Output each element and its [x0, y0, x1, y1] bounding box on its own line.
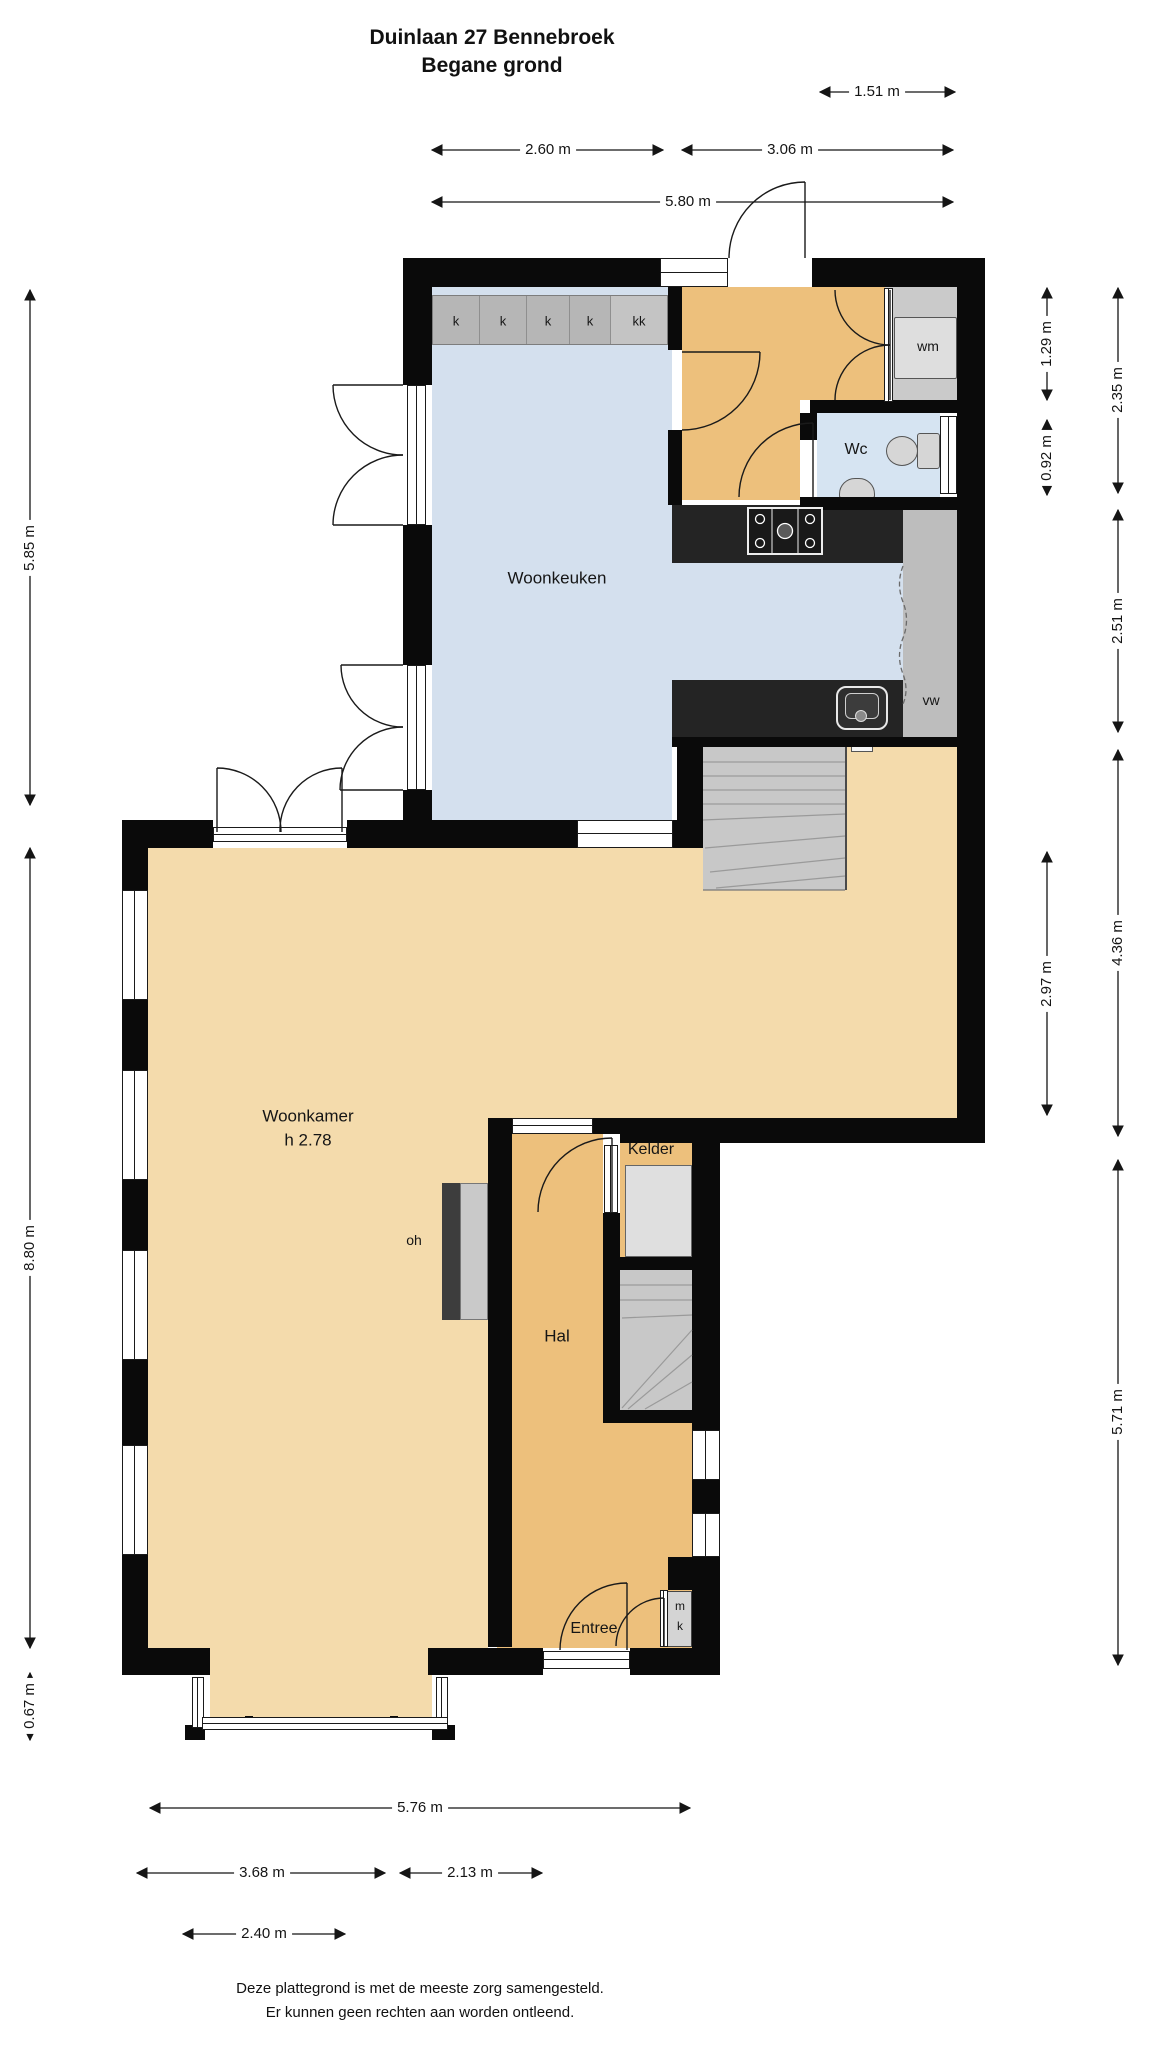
bijkeuken-floor-a	[682, 287, 885, 400]
wall	[593, 1118, 620, 1134]
window	[122, 1445, 148, 1555]
kitchen-counter-top	[672, 505, 903, 563]
room-label-kelder: Kelder	[628, 1142, 674, 1158]
wall	[800, 497, 957, 510]
dim-bottom-left: 3.68 m	[234, 1864, 290, 1883]
footer-line2: Er kunnen geen rechten aan worden ontlee…	[266, 2004, 575, 2021]
french-door-leaf	[340, 727, 403, 790]
room-label-woonkeuken: Woonkeuken	[508, 570, 607, 587]
fireplace-back	[442, 1183, 460, 1320]
sink-drain	[855, 710, 867, 722]
fixture-label-oh: oh	[406, 1233, 422, 1247]
dim-right-wm: 1.29 m	[1038, 316, 1057, 372]
wall	[668, 1557, 720, 1590]
french-door-glass	[407, 665, 426, 790]
cabinet-label: k	[500, 315, 507, 328]
footer-line1: Deze plattegrond is met de meeste zorg s…	[236, 1980, 604, 1997]
cabinet-label: k	[545, 315, 552, 328]
dim-top-right: 3.06 m	[762, 141, 818, 160]
floorplan-page: Duinlaan 27 Bennebroek Begane grond	[0, 0, 1152, 2048]
dim-bottom-right: 2.13 m	[442, 1864, 498, 1883]
closet-door-sill	[884, 288, 893, 402]
wall	[122, 1180, 148, 1250]
dim-right-lower: 5.71 m	[1109, 1384, 1128, 1440]
stairs-up	[703, 747, 847, 890]
front-door-threshold	[543, 1651, 630, 1669]
wall	[347, 820, 577, 848]
cabinet-label: k	[587, 315, 594, 328]
wall	[122, 1000, 148, 1070]
french-door-leaf	[333, 455, 403, 525]
wall	[488, 1134, 512, 1647]
wall	[630, 1648, 720, 1675]
room-label-woonkamer: Woonkamer	[262, 1108, 353, 1125]
stairs-mid	[620, 1270, 692, 1410]
toilet-tank	[917, 433, 940, 469]
dim-right-kitchen: 2.51 m	[1109, 593, 1128, 649]
wall	[428, 1648, 543, 1675]
woonkamer-floor-left	[148, 1118, 488, 1648]
wall	[403, 790, 432, 822]
woonkeuken-floor	[432, 287, 672, 820]
wall	[122, 1648, 210, 1675]
wall	[692, 1423, 720, 1430]
fixture-label-mk-k: k	[677, 1620, 683, 1632]
wall	[668, 430, 682, 505]
dim-left-upper: 5.85 m	[21, 520, 40, 576]
dim-bottom-total: 5.76 m	[392, 1799, 448, 1818]
terrace-door-leaf	[280, 768, 342, 832]
window	[122, 1250, 148, 1360]
wall	[620, 1118, 985, 1143]
french-door-leaf	[333, 385, 403, 455]
wall	[668, 287, 682, 350]
cabinet-divider	[610, 296, 611, 344]
dim-right-wc: 0.92 m	[1038, 430, 1057, 486]
dim-top-left: 2.60 m	[520, 141, 576, 160]
room-label-woonkamer-height: h 2.78	[284, 1132, 331, 1149]
plan-subtitle: Begane grond	[421, 54, 562, 78]
window	[692, 1513, 720, 1557]
terrace-door-sill	[213, 827, 347, 842]
cabinet-divider	[569, 296, 570, 344]
dim-right-upper-total: 2.35 m	[1109, 362, 1128, 418]
dim-left-main: 8.80 m	[21, 1220, 40, 1276]
back-door	[729, 182, 805, 258]
cabinet-divider	[479, 296, 480, 344]
plan-title: Duinlaan 27 Bennebroek	[369, 26, 614, 50]
fixture-label-wm: wm	[917, 339, 939, 353]
wall	[403, 287, 432, 385]
cabinet-divider	[526, 296, 527, 344]
bay-window-front	[202, 1717, 448, 1730]
dim-right-mid-total: 4.36 m	[1109, 915, 1128, 971]
wall	[122, 848, 148, 890]
bijkeuken-floor-b	[682, 400, 800, 500]
window	[577, 820, 673, 848]
room-label-entree: Entree	[570, 1621, 617, 1637]
wall	[122, 820, 213, 848]
fixture-label-vw: vw	[922, 693, 939, 707]
hal-door-sill	[604, 1145, 618, 1213]
toilet-bowl	[886, 436, 918, 466]
fixture-label-mk-m: m	[675, 1600, 685, 1612]
dim-top-small: 1.51 m	[849, 83, 905, 102]
wall	[692, 1480, 720, 1513]
dim-left-bay: 0.67 m	[21, 1678, 40, 1734]
terrace-door-leaf	[217, 768, 281, 832]
kelder-hatch	[625, 1165, 692, 1257]
wall	[957, 258, 985, 1143]
dim-right-mid: 2.97 m	[1038, 956, 1057, 1012]
wall	[122, 1555, 148, 1648]
window	[122, 890, 148, 1000]
dim-top-total: 5.80 m	[660, 193, 716, 212]
interior-window	[512, 1118, 593, 1134]
bay-floor	[210, 1648, 432, 1720]
room-label-wc: Wc	[844, 442, 867, 458]
wall	[122, 1360, 148, 1445]
window	[660, 258, 728, 287]
wall	[677, 737, 703, 848]
mk-door-sill	[660, 1590, 668, 1647]
room-label-hal: Hal	[544, 1328, 570, 1345]
wall	[672, 737, 957, 747]
dim-bottom-bay: 2.40 m	[236, 1925, 292, 1944]
fireplace-hearth	[460, 1183, 488, 1320]
wall	[692, 1143, 720, 1423]
wall	[403, 258, 660, 287]
cabinet-label: k	[453, 315, 460, 328]
woonkeuken-floor-mid	[672, 563, 903, 680]
french-door-glass	[407, 385, 426, 525]
wall	[603, 1410, 720, 1423]
hal-floor	[512, 1134, 603, 1423]
wall	[800, 413, 817, 440]
wall	[488, 1118, 512, 1134]
woonkamer-floor-right	[845, 747, 957, 851]
cabinet-label: kk	[633, 315, 646, 328]
wc-window	[940, 416, 957, 494]
window	[692, 1430, 720, 1480]
wall	[403, 525, 432, 665]
french-door-leaf	[341, 665, 403, 727]
window	[122, 1070, 148, 1180]
wall	[603, 1213, 620, 1423]
